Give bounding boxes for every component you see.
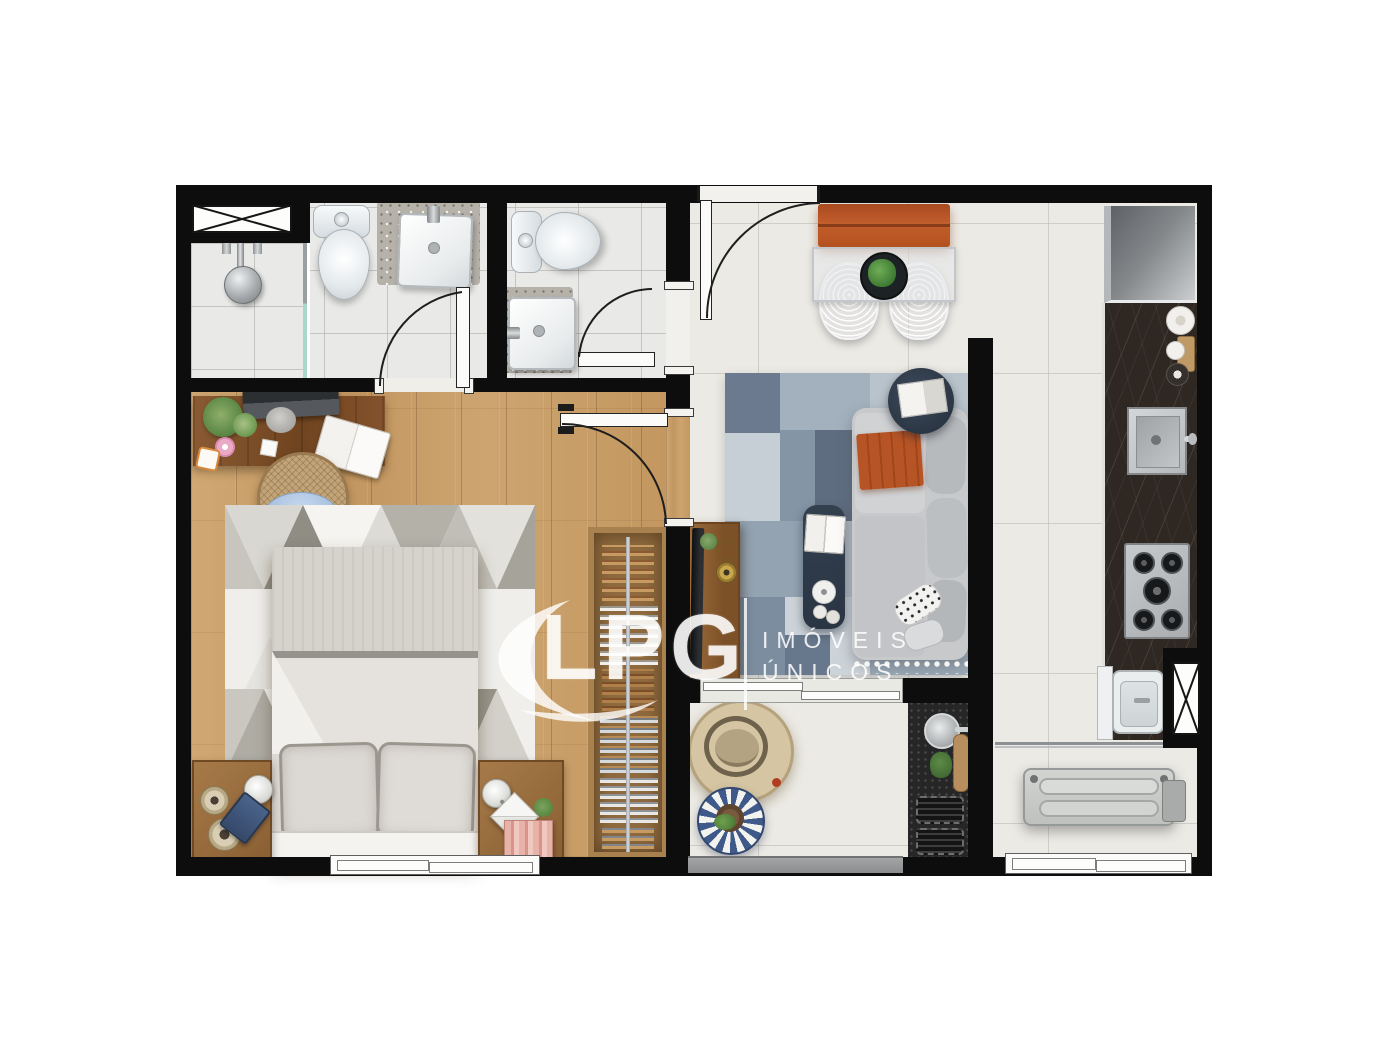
kitchen-sink-drain [1151, 435, 1161, 445]
washing-machine-knob [1030, 775, 1038, 783]
service-window [1005, 853, 1192, 874]
suite-door-leaf [560, 413, 668, 427]
grill-plant [930, 752, 952, 778]
pouf-plant [714, 814, 736, 830]
laundry-tub-faucet [1134, 698, 1150, 703]
rug-patch [785, 635, 830, 675]
hanging-chair-seat [715, 729, 759, 767]
coffee-table-book [804, 514, 847, 555]
toilet-social-button [518, 233, 533, 248]
burner-center [1143, 577, 1171, 605]
sliding-door-panel [801, 691, 900, 700]
coffee-table-cup2 [826, 610, 840, 624]
social-bath-door-leaf [578, 352, 655, 367]
door-jamb [664, 408, 694, 417]
refrigerator [1104, 206, 1195, 303]
washbasin-suite-drain [428, 242, 440, 254]
tv-console-plant [700, 533, 717, 550]
dining-bench-fold [818, 224, 950, 227]
nightstand-left-disc1 [200, 786, 229, 815]
suite-window-pane [337, 860, 429, 871]
service-window-pane [1096, 860, 1186, 872]
counter-cup [1166, 341, 1185, 360]
washing-machine [1023, 768, 1175, 826]
entry-door-recess [697, 186, 820, 202]
ventilation-shaft-right [1172, 662, 1200, 735]
toilet-suite-button [334, 212, 349, 227]
wall-top [176, 185, 1212, 203]
sofa-fringe [852, 658, 970, 674]
burner [1161, 609, 1183, 631]
laundry-tub-basin [1120, 681, 1158, 727]
burner [1133, 609, 1155, 631]
rug-patch [725, 373, 780, 433]
kitchen-faucet-base [1188, 433, 1197, 445]
door-jamb [664, 518, 694, 527]
wall-right [1197, 185, 1212, 876]
burner [1161, 552, 1183, 574]
shower-head-icon [224, 266, 262, 304]
doorway-social-bath [666, 285, 690, 372]
suite-bath-door-leaf [456, 287, 470, 388]
bed-pillow-left [279, 742, 380, 841]
desk-knit-pot [266, 407, 296, 433]
suite-window [330, 855, 540, 875]
washbasin-social-drain [533, 325, 545, 337]
balcony-sliding-door [700, 678, 903, 703]
suite-door-hinge [558, 404, 574, 411]
service-window-pane [1012, 858, 1096, 870]
door-jamb [664, 281, 694, 290]
washing-machine-lid2 [1039, 800, 1159, 817]
grill-grate-2 [916, 828, 964, 855]
sofa [852, 408, 970, 676]
washing-machine-lid1 [1039, 778, 1159, 795]
tv-console-disc1 [716, 540, 737, 561]
door-jamb [664, 366, 694, 375]
double-bed [272, 547, 478, 862]
rug-patch [725, 433, 780, 521]
bed-duvet-fold [272, 651, 478, 658]
shower-glass-panel [303, 243, 307, 378]
washbasin-suite-faucet [427, 206, 440, 223]
counter-bowl-dark [1166, 363, 1189, 386]
coffee-table-plate [812, 580, 836, 604]
laundry-heater-panel [1097, 666, 1113, 740]
side-table-magazine [897, 378, 948, 418]
counter-dish [1166, 306, 1195, 335]
burner [1133, 552, 1155, 574]
wall-kitchen-half [968, 338, 993, 858]
wall-left [176, 185, 191, 876]
plant-right-nightstand [534, 798, 553, 817]
pink-book-stack [504, 820, 553, 858]
sofa-back-pillow-2 [926, 497, 969, 578]
tv-screen [690, 528, 705, 674]
wardrobe-rod [626, 537, 630, 852]
entry-door-leaf [700, 200, 712, 320]
wall-bath-divider [487, 185, 507, 392]
tv-console-disc2 [716, 562, 737, 583]
laundry-tub [1112, 670, 1164, 734]
suite-door-hinge [558, 427, 574, 434]
desk-hex-box [195, 446, 221, 472]
suite-window-pane [429, 862, 533, 873]
cooktop [1124, 543, 1190, 639]
sofa-throw-orange [856, 430, 924, 490]
dining-centerpiece-plant [868, 259, 896, 287]
grill-board [953, 734, 969, 792]
grill-grate-1 [916, 796, 964, 824]
door-jamb [374, 378, 384, 394]
washing-machine-hose [1162, 780, 1186, 822]
desk-note [260, 439, 279, 458]
shower-box-floor [191, 243, 303, 378]
kitchen-sink [1127, 407, 1187, 475]
balcony-guardrail [688, 856, 903, 873]
coffee-table-cup1 [813, 605, 827, 619]
sliding-door-panel [703, 682, 803, 691]
bed-duvet-top [272, 547, 478, 653]
ventilation-shaft-top [192, 205, 292, 233]
floor-plan: LPG IMÓVEIS ÚNICOS [0, 0, 1400, 1060]
hanging-chair-hook [772, 778, 781, 787]
doorway-suite [666, 412, 690, 524]
wardrobe [588, 527, 668, 858]
wall-balcony-top-right [900, 678, 968, 703]
desk-plant-small [233, 413, 257, 437]
bed-pillow-right [376, 742, 476, 841]
